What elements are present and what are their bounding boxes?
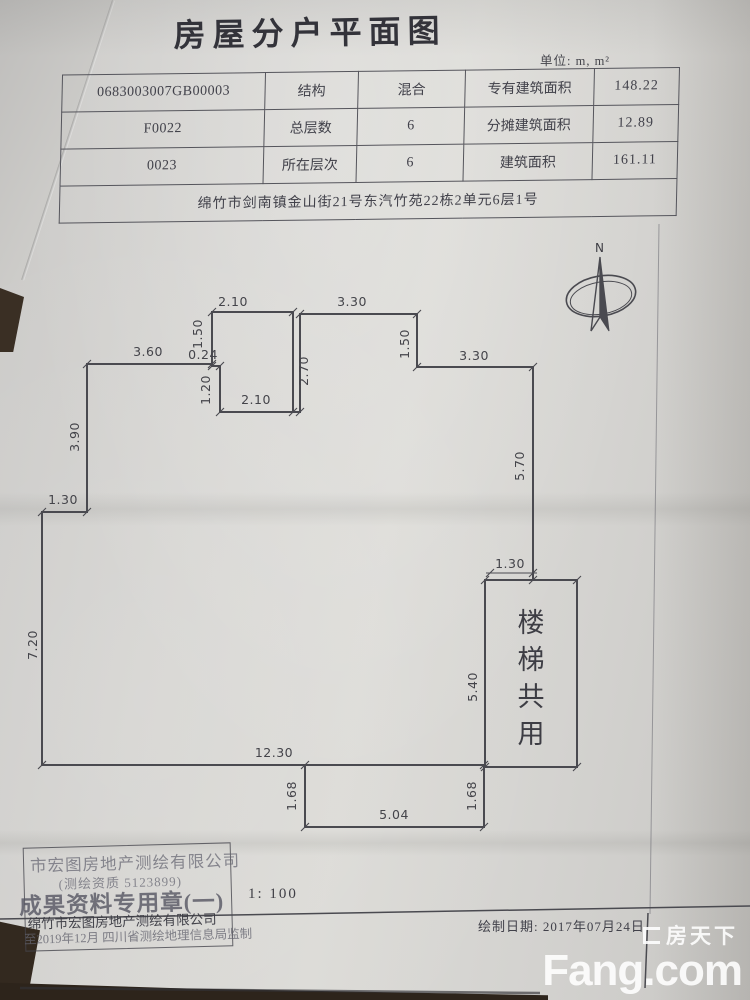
dimension-label: 1.68 (284, 781, 299, 811)
watermark-english: Fang.com (542, 950, 742, 992)
drawing-scale: 1: 100 (248, 886, 298, 903)
stairs-label-char: 楼 (518, 608, 545, 638)
dimension-label: 1.50 (397, 329, 412, 359)
stairs-label-char: 共 (518, 682, 545, 712)
dimension-label: 2.70 (296, 356, 311, 386)
dimension-label: 2.10 (218, 294, 248, 309)
dimension-label: 2.10 (241, 392, 271, 407)
dimension-label: 3.30 (459, 348, 489, 363)
fang-logo-icon (643, 927, 660, 944)
dimension-label: 3.60 (133, 344, 163, 359)
dimension-label: 3.30 (337, 294, 367, 309)
north-compass-icon: N (563, 241, 639, 331)
dimension-label: 1.20 (198, 375, 213, 405)
stairs-label-char: 梯 (518, 645, 545, 675)
stairs-label-char: 用 (518, 719, 545, 749)
dimension-label: 5.04 (379, 807, 409, 822)
photographed-floor-plan-document: 房屋分户平面图 单位: m, m² 0683003007GB00003 结构 混… (0, 0, 750, 1000)
stairs-shared-label: 楼梯共用 (518, 608, 545, 749)
dimension-label: 5.70 (512, 451, 527, 481)
fang-watermark: 房天下 Fang.com (542, 920, 742, 992)
dimension-label: 7.20 (25, 630, 40, 660)
surveyor-stamp: 市宏图房地产测绘有限公司 (测绘资质 5123899) 成果资料专用章(一) 绵… (23, 842, 234, 951)
dimension-label: 5.40 (465, 672, 480, 702)
dimension-labels: 2.103.301.502.701.503.600.241.202.103.30… (25, 294, 527, 822)
dimension-label: 0.24 (188, 347, 218, 362)
dimension-label: 1.68 (464, 781, 479, 811)
north-label: N (595, 241, 604, 255)
dimension-label: 1.30 (495, 556, 525, 571)
dimension-label: 1.50 (190, 319, 205, 349)
dimension-label: 12.30 (255, 745, 293, 760)
dimension-label: 3.90 (67, 422, 82, 452)
dimension-label: 1.30 (48, 492, 78, 507)
